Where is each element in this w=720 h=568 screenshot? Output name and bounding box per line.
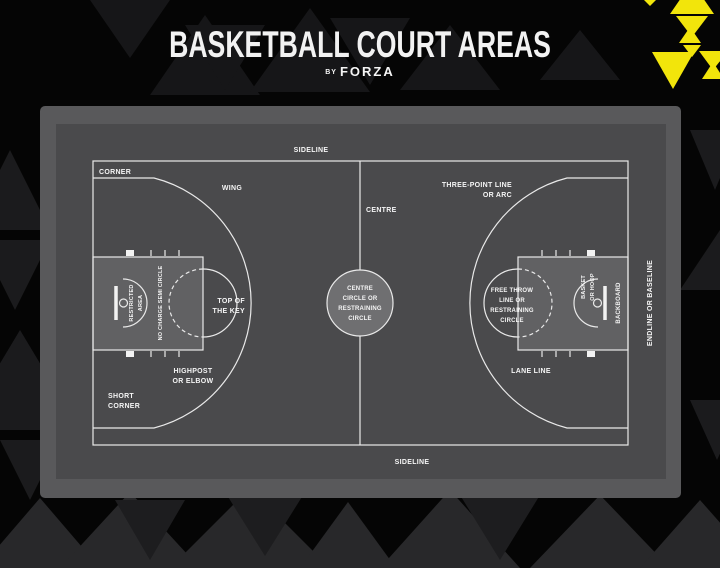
accent-triangle xyxy=(670,0,714,14)
infographic-page: BASKETBALL COURT AREAS BYFORZA xyxy=(0,0,720,568)
accent-triangle xyxy=(652,52,694,89)
accent-triangle xyxy=(644,0,656,6)
accent-triangle-cluster xyxy=(0,0,720,568)
accent-triangle xyxy=(699,51,720,70)
